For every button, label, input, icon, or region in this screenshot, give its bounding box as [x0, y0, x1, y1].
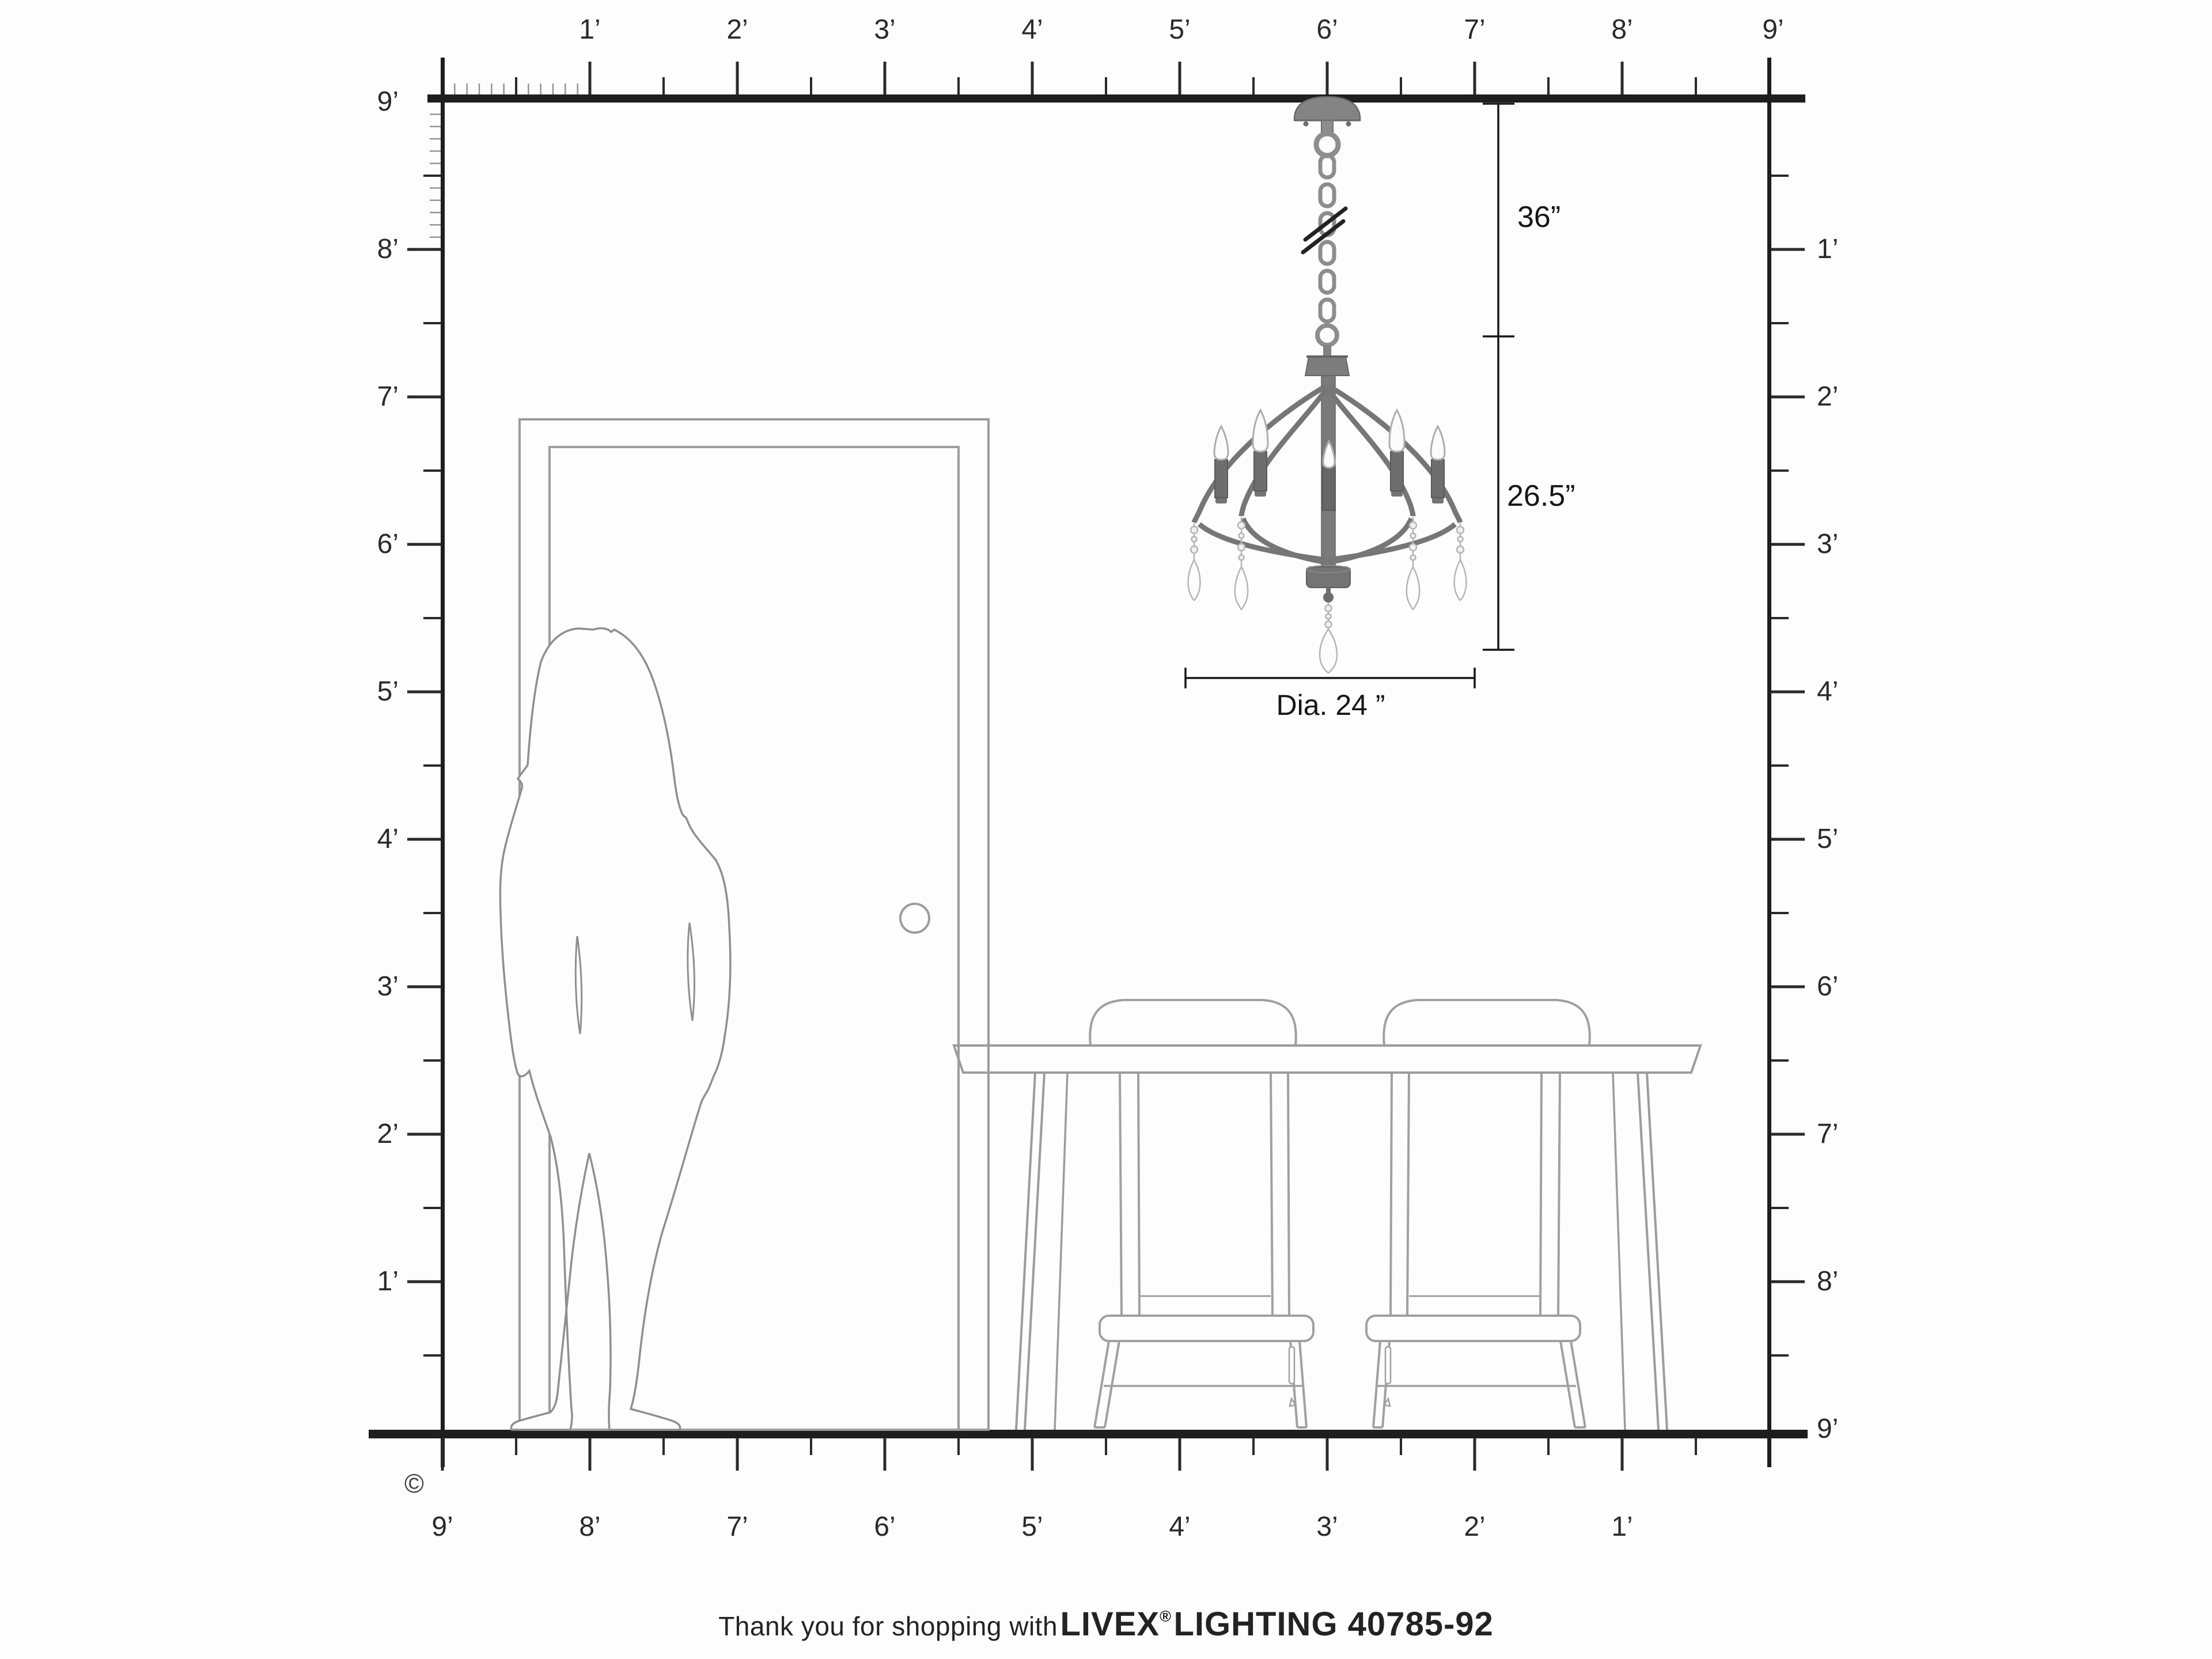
ruler-tick — [540, 84, 541, 94]
chair-back — [1090, 1000, 1296, 1046]
diameter-label: Dia. 24 ” — [1186, 691, 1475, 719]
ruler-tick — [423, 1059, 441, 1062]
ruler-tick — [407, 986, 441, 988]
ruler-tick — [430, 162, 441, 164]
ruler-tick — [528, 84, 529, 94]
chain-link — [1320, 271, 1334, 293]
ruler-tick — [1326, 62, 1329, 94]
bulb-icon — [1253, 410, 1268, 452]
chandelier — [1188, 97, 1467, 673]
ruler-tick — [1031, 62, 1034, 94]
bottom-ruler-label: 4’ — [1169, 1513, 1190, 1541]
ruler-tick — [1252, 77, 1255, 94]
hub-cup — [1305, 357, 1349, 376]
left-ruler-label: 6’ — [377, 531, 399, 558]
ruler-tick — [1326, 1438, 1329, 1471]
ruler-tick — [1474, 62, 1476, 94]
right-ruler-label: 2’ — [1817, 383, 1838, 411]
ruler-tick — [430, 212, 441, 213]
ruler-tick — [430, 187, 441, 188]
ruler-tick — [430, 113, 441, 115]
table-leg-back-left — [1055, 1073, 1067, 1430]
chair-back-posts — [1120, 1073, 1289, 1316]
ruler-tick — [1179, 1438, 1181, 1471]
ruler-tick — [441, 1438, 444, 1471]
left-ruler-ticks — [407, 113, 441, 1357]
ruler-tick — [423, 1207, 441, 1209]
door-knob — [900, 904, 929, 933]
bulb-icon — [1389, 410, 1404, 452]
ruler-tick — [423, 175, 441, 177]
canopy-screw — [1304, 122, 1309, 127]
ruler-tick — [407, 543, 441, 546]
ruler-tick — [1771, 617, 1789, 619]
table-top — [954, 1046, 1700, 1073]
scale-diagram: 1’ 2’ 3’ 4’ 5’ 6’ 7’ 8’ 9’ 9’ 8’ 7’ 6’ 5… — [0, 0, 2212, 1659]
ruler-tick — [423, 469, 441, 472]
left-ruler-label: 7’ — [377, 383, 399, 411]
bottom-ruler-ticks — [441, 1438, 1698, 1471]
ruler-tick — [503, 84, 504, 94]
ruler-tick — [430, 199, 441, 200]
ruler-tick — [1771, 912, 1789, 914]
left-ruler-label: 5’ — [377, 678, 399, 706]
ruler-tick — [479, 84, 480, 94]
ruler-tick — [577, 84, 578, 94]
chain-link — [1320, 184, 1334, 206]
crystal-teardrop-icon — [1407, 567, 1419, 609]
crystal-teardrop-icon — [1320, 629, 1337, 673]
ruler-tick — [1547, 77, 1550, 94]
left-ruler-label: 3’ — [377, 973, 399, 1001]
ruler-tick — [430, 150, 441, 151]
top-ruler-ticks — [454, 62, 1697, 94]
ruler-tick — [884, 62, 887, 94]
ruler-tick — [1031, 1438, 1034, 1471]
ruler-tick — [1771, 691, 1805, 694]
right-ruler-label: 1’ — [1817, 236, 1838, 263]
canopy-screw — [1346, 122, 1351, 127]
ruler-tick — [1547, 1438, 1550, 1455]
left-wall-line — [441, 58, 445, 1467]
right-ruler-label: 3’ — [1817, 531, 1838, 558]
ruler-tick — [515, 77, 517, 94]
right-ruler-label: 9’ — [1817, 1415, 1838, 1443]
bottom-ruler-label: 2’ — [1464, 1513, 1485, 1541]
bulb-icon — [1431, 426, 1445, 460]
right-wall-line — [1767, 58, 1771, 1467]
ruler-tick — [407, 1281, 441, 1283]
top-ruler-label: 6’ — [1316, 16, 1338, 44]
ruler-tick — [1771, 1133, 1805, 1136]
ruler-tick — [1771, 396, 1805, 399]
left-ruler-label: 9’ — [377, 88, 399, 116]
ruler-tick — [1105, 1438, 1107, 1455]
bottom-ruler-label: 5’ — [1021, 1513, 1043, 1541]
ruler-tick — [1400, 77, 1402, 94]
ruler-tick — [423, 912, 441, 914]
right-ruler-ticks — [1771, 175, 1805, 1357]
woman-outline — [500, 628, 730, 1430]
chair-seat — [1366, 1316, 1580, 1341]
ruler-tick — [1105, 77, 1107, 94]
ruler-tick — [662, 1438, 665, 1455]
ruler-tick — [736, 1438, 739, 1471]
ruler-tick — [884, 1438, 887, 1471]
bulb-icon — [1214, 426, 1228, 460]
ruler-tick — [1771, 1281, 1805, 1283]
chair-seat — [1100, 1316, 1313, 1341]
table-leg-front-left — [1016, 1073, 1044, 1430]
left-ruler-label: 2’ — [377, 1120, 399, 1148]
ruler-tick — [1621, 1438, 1624, 1471]
ruler-tick — [407, 691, 441, 694]
fixture-height-label: 26.5” — [1507, 481, 1575, 511]
chair-back — [1384, 1000, 1590, 1046]
finial-ball — [1323, 592, 1334, 603]
top-ruler-label: 1’ — [579, 16, 600, 44]
floor-line — [369, 1430, 1808, 1438]
ruler-tick — [454, 84, 455, 94]
ruler-tick — [1771, 469, 1789, 472]
chain-link — [1320, 156, 1334, 177]
crystal-teardrop-icon — [1455, 560, 1467, 600]
ruler-tick — [736, 62, 739, 94]
bottom-drum — [1306, 567, 1350, 588]
ruler-tick — [407, 396, 441, 399]
chandelier-body — [1194, 345, 1460, 603]
woman-silhouette — [500, 628, 730, 1430]
ruler-tick — [423, 617, 441, 619]
ruler-tick — [565, 84, 566, 94]
ruler-tick — [1771, 1207, 1789, 1209]
stem-connector — [1323, 345, 1331, 357]
ruler-tick — [589, 62, 592, 94]
left-ruler-label: 4’ — [377, 825, 399, 853]
ruler-tick — [1771, 986, 1805, 988]
ruler-tick — [430, 138, 441, 139]
ruler-tick — [430, 236, 441, 237]
bottom-ruler-label: 6’ — [874, 1513, 895, 1541]
ceiling-line — [427, 94, 1805, 103]
ruler-tick — [407, 838, 441, 841]
crystal-teardrop-icon — [1188, 560, 1200, 600]
top-ruler-label: 3’ — [874, 16, 895, 44]
dimension-lines — [1185, 104, 1514, 688]
chair-front-leg — [1560, 1341, 1585, 1427]
ruler-tick — [1771, 764, 1789, 767]
ruler-tick — [1771, 543, 1805, 546]
ruler-tick — [1771, 322, 1789, 324]
ruler-tick — [1621, 62, 1624, 94]
bottom-ruler-label: 8’ — [579, 1513, 600, 1541]
left-ruler-label: 1’ — [377, 1268, 399, 1296]
top-ruler-label: 8’ — [1611, 16, 1633, 44]
footer: Thank you for shopping with LIVEX® LIGHT… — [0, 1605, 2212, 1643]
ruler-tick — [407, 1133, 441, 1136]
ruler-tick — [491, 84, 492, 94]
chain-link — [1320, 300, 1334, 321]
chain-length-label: 36” — [1517, 202, 1560, 232]
table-leg-front-right — [1638, 1073, 1667, 1430]
top-ruler-label: 5’ — [1169, 16, 1190, 44]
ruler-tick — [407, 248, 441, 251]
ruler-tick — [1771, 1059, 1789, 1062]
bottom-ruler-label: 3’ — [1316, 1513, 1338, 1541]
top-ruler-label: 9’ — [1762, 16, 1783, 44]
left-ruler-label: 8’ — [377, 236, 399, 263]
right-ruler-label: 4’ — [1817, 678, 1838, 706]
ruler-tick — [430, 126, 441, 127]
top-ruler-label: 2’ — [726, 16, 748, 44]
ruler-tick — [1771, 248, 1805, 251]
ruler-tick — [662, 77, 665, 94]
ruler-tick — [589, 1438, 592, 1471]
chair-back-posts — [1391, 1073, 1560, 1316]
copyright-symbol: © — [404, 1470, 424, 1497]
diagram-art — [0, 0, 2212, 1659]
product-number: LIGHTING 40785-92 — [1173, 1605, 1493, 1643]
footer-text: Thank you for shopping with — [718, 1611, 1058, 1641]
top-ruler-label: 4’ — [1021, 16, 1043, 44]
ruler-tick — [1474, 1438, 1476, 1471]
crystal-teardrop-icon — [1235, 567, 1248, 609]
brand-name: LIVEX — [1060, 1605, 1160, 1643]
ruler-tick — [1771, 1354, 1789, 1357]
top-ruler-label: 7’ — [1464, 16, 1485, 44]
right-ruler-label: 6’ — [1817, 973, 1838, 1001]
ruler-tick — [1400, 1438, 1402, 1455]
ruler-tick — [515, 1438, 517, 1455]
ruler-tick — [957, 1438, 960, 1455]
ruler-tick — [552, 84, 554, 94]
chain-link — [1320, 242, 1334, 264]
ruler-tick — [810, 1438, 812, 1455]
bottom-ruler-label: 1’ — [1611, 1513, 1633, 1541]
ruler-tick — [1179, 62, 1181, 94]
ruler-tick — [810, 77, 812, 94]
chain-ring-top — [1316, 134, 1338, 156]
registered-mark-icon: ® — [1160, 1608, 1171, 1625]
right-ruler-label: 7’ — [1817, 1120, 1838, 1148]
chair-slot — [1289, 1347, 1294, 1384]
ruler-tick — [423, 1354, 441, 1357]
ruler-tick — [1252, 1438, 1255, 1455]
chair-slot — [1385, 1347, 1391, 1384]
ruler-tick — [1771, 175, 1789, 177]
ruler-tick — [423, 764, 441, 767]
chain-ring-bottom — [1317, 325, 1337, 345]
bottom-ruler-label: 9’ — [431, 1513, 453, 1541]
ruler-tick — [423, 322, 441, 324]
dining-table — [954, 1046, 1700, 1430]
right-ruler-label: 5’ — [1817, 825, 1838, 853]
right-ruler-label: 8’ — [1817, 1268, 1838, 1296]
ruler-tick — [430, 224, 441, 225]
ruler-tick — [1695, 1438, 1697, 1455]
chair-front-leg — [1094, 1341, 1119, 1427]
table-leg-back-right — [1613, 1073, 1625, 1430]
ruler-tick — [466, 84, 467, 94]
ceiling-canopy — [1294, 97, 1360, 134]
ruler-tick — [1771, 838, 1805, 841]
ruler-tick — [957, 77, 960, 94]
bottom-ruler-label: 7’ — [726, 1513, 748, 1541]
ruler-tick — [1695, 77, 1697, 94]
